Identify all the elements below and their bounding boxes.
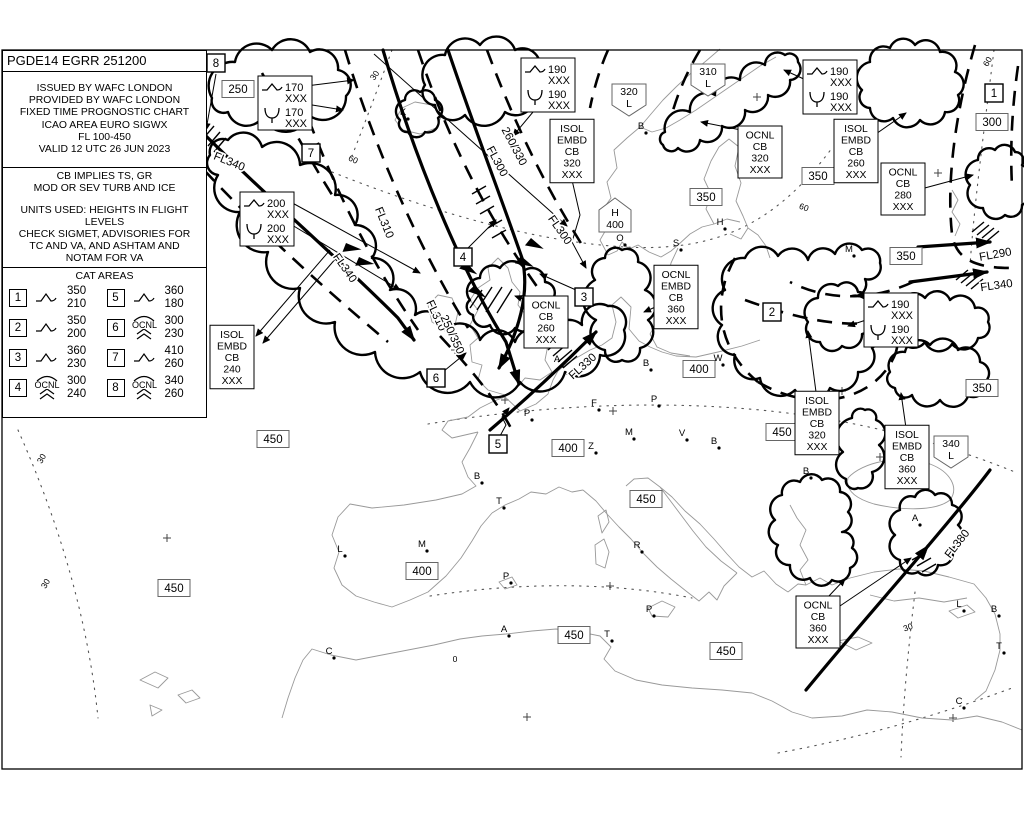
city-marker: B bbox=[643, 358, 653, 372]
cat-area-number-box: 7 bbox=[302, 144, 320, 162]
tropopause-height-box: 350 bbox=[890, 248, 922, 265]
text-line: ISSUED BY WAFC LONDON bbox=[37, 83, 173, 95]
cat-top-level: 360 bbox=[67, 345, 86, 358]
cat-boundaries bbox=[204, 45, 1018, 430]
cat-legend-entry: 2350200 bbox=[9, 315, 105, 340]
cat-entry-number: 1 bbox=[9, 289, 27, 307]
tropopause-height-box: 450 bbox=[766, 424, 798, 441]
tropopause-height-box: 350 bbox=[966, 380, 998, 397]
cat-legend-entry: 3360230 bbox=[9, 345, 105, 370]
city-dot bbox=[406, 117, 409, 120]
cb-box-line: CB bbox=[753, 142, 768, 153]
jet-label: FL340 bbox=[212, 151, 247, 174]
cb-area-scalloped bbox=[890, 490, 963, 575]
cb-info-box: ISOLEMBDCB240XXX bbox=[210, 325, 254, 389]
trop-box-value: 350 bbox=[896, 251, 915, 263]
city-dot bbox=[721, 363, 724, 366]
cb-box-line: 260 bbox=[537, 324, 555, 335]
leader-arrow bbox=[306, 80, 354, 86]
coastline bbox=[598, 510, 609, 533]
coastline bbox=[282, 629, 1022, 730]
wind-feather bbox=[480, 206, 494, 214]
text-line: ICAO AREA EURO SIGWX bbox=[42, 120, 168, 132]
trop-pent-top: 340 bbox=[942, 438, 960, 450]
severe-turbulence-icon: OCNL bbox=[128, 315, 162, 340]
cat-boundary-dashed bbox=[721, 258, 758, 382]
trop-pent-bottom: L bbox=[626, 98, 632, 110]
text-line: UNITS USED: HEIGHTS IN FLIGHT LEVELS bbox=[3, 205, 206, 229]
city-marker: H bbox=[717, 217, 727, 231]
cat-legend-entry: 6OCNL300230 bbox=[107, 315, 203, 340]
tropopause-height-box: 300 bbox=[976, 114, 1008, 131]
cb-info-box: OCNLEMBDCB360XXX bbox=[654, 265, 698, 329]
cb-note: CB IMPLIES TS, GRMOD OR SEV TURB AND ICE bbox=[34, 171, 176, 195]
turb-ice-box: 190XXX190XXX bbox=[521, 58, 575, 112]
cb-info-box: OCNLCB320XXX bbox=[738, 126, 782, 178]
tropopause-height-box: 250 bbox=[222, 81, 254, 98]
ocnl-severe-turb-stack: OCNL bbox=[34, 375, 59, 400]
trop-box-value: 300 bbox=[982, 117, 1001, 129]
cat-entry-number: 8 bbox=[107, 379, 125, 397]
cat-number: 2 bbox=[769, 307, 775, 319]
city-letter: V bbox=[679, 428, 686, 439]
cb-box-line: CB bbox=[900, 453, 915, 464]
city-dot bbox=[962, 706, 965, 709]
city-dot bbox=[962, 609, 965, 612]
city-dot bbox=[1002, 651, 1005, 654]
city-dot bbox=[507, 634, 510, 637]
cb-box-line: OCNL bbox=[746, 131, 775, 142]
cat-entry-number: 5 bbox=[107, 289, 125, 307]
cat-top-level: 340 bbox=[165, 375, 184, 388]
cb-info-box: ISOLEMBDCB320XXX bbox=[550, 119, 594, 183]
cat-legend-entry: 7410260 bbox=[107, 345, 203, 370]
city-letter: T bbox=[496, 496, 502, 507]
city-dot bbox=[594, 451, 597, 454]
cat-area-number-box: 6 bbox=[427, 369, 445, 387]
cb-box-line: OCNL bbox=[889, 168, 918, 179]
turb-ice-box: 190XXX190XXX bbox=[803, 60, 857, 114]
tropopause-height-box: 400 bbox=[552, 440, 584, 457]
cb-box-line: 240 bbox=[223, 364, 241, 375]
trop-box-value: 450 bbox=[716, 646, 735, 658]
cat-base-level: 260 bbox=[165, 388, 184, 401]
wind-feather bbox=[917, 558, 931, 566]
trop-box-value: 400 bbox=[689, 364, 708, 376]
notes-block: CB IMPLIES TS, GRMOD OR SEV TURB AND ICE… bbox=[3, 168, 206, 268]
city-letter: B bbox=[638, 121, 644, 132]
jet-label: FL300 bbox=[545, 213, 574, 247]
city-dot bbox=[657, 404, 660, 407]
city-dot bbox=[632, 437, 635, 440]
text-line: VALID 12 UTC 26 JUN 2023 bbox=[39, 144, 170, 156]
cat-entry-values: 360230 bbox=[67, 345, 86, 370]
city-marker: M bbox=[418, 539, 429, 553]
cb-box-line: XXX bbox=[807, 442, 828, 453]
cb-box-line: EMBD bbox=[802, 407, 832, 418]
text-line: FL 100-450 bbox=[78, 132, 131, 144]
tropopause-height-box: 350 bbox=[802, 168, 834, 185]
trop-pent-top: 320 bbox=[620, 86, 638, 98]
trop-pent-top: 310 bbox=[699, 66, 717, 78]
cat-area-number-box: 8 bbox=[207, 54, 225, 72]
tropopause-height-box: 450 bbox=[257, 431, 289, 448]
trop-box-value: 450 bbox=[164, 583, 183, 595]
leader-arrow bbox=[206, 74, 216, 130]
graticule-line bbox=[430, 586, 692, 598]
cat-entry-values: 360180 bbox=[165, 285, 184, 310]
cat-base-level: 230 bbox=[67, 358, 86, 371]
cat-number: 1 bbox=[991, 88, 997, 100]
city-letter: M bbox=[418, 539, 426, 550]
city-dot bbox=[679, 248, 682, 251]
cat-boundary-dashed bbox=[300, 96, 418, 330]
cat-area-number-box: 2 bbox=[763, 303, 781, 321]
trop-box-value: 450 bbox=[564, 630, 583, 642]
trop-box-value: 250 bbox=[228, 84, 247, 96]
cb-box-line: XXX bbox=[222, 376, 243, 387]
jet-stream-arrow bbox=[910, 272, 987, 282]
cb-box-line: XXX bbox=[562, 170, 583, 181]
cat-entry-number: 6 bbox=[107, 319, 125, 337]
city-dot bbox=[597, 408, 600, 411]
city-dot bbox=[640, 550, 643, 553]
ice-base: XXX bbox=[891, 335, 914, 347]
cat-number: 3 bbox=[581, 292, 587, 304]
jet-stream-arrow bbox=[448, 50, 525, 368]
city-dot bbox=[809, 476, 812, 479]
coastline bbox=[150, 705, 162, 716]
city-marker: P bbox=[646, 604, 656, 618]
cb-box-line: 320 bbox=[808, 430, 826, 441]
turb-base: XXX bbox=[891, 310, 914, 322]
cb-box-line: OCNL bbox=[662, 270, 691, 281]
cb-info-box: ISOLEMBDCB320XXX bbox=[795, 391, 839, 455]
cb-box-line: ISOL bbox=[220, 330, 244, 341]
text-line: FIXED TIME PROGNOSTIC CHART bbox=[20, 107, 189, 119]
city-letter: S bbox=[673, 238, 679, 249]
trop-box-value: 350 bbox=[808, 171, 827, 183]
cat-top-level: 360 bbox=[165, 285, 184, 298]
coastline bbox=[650, 334, 690, 356]
city-marker: A bbox=[554, 354, 564, 368]
cb-info-box: OCNLCB360XXX bbox=[796, 596, 840, 648]
graticule-cross bbox=[876, 453, 884, 461]
city-letter: B bbox=[643, 358, 649, 369]
coastline bbox=[660, 487, 788, 592]
city-letter: F bbox=[591, 398, 597, 409]
city-marker: O bbox=[616, 233, 626, 247]
coastline bbox=[178, 690, 200, 703]
graticule-cross bbox=[934, 169, 942, 177]
coastline bbox=[492, 487, 583, 513]
city-dot bbox=[332, 656, 335, 659]
cb-area-scalloped bbox=[857, 39, 964, 128]
ice-base: XXX bbox=[548, 100, 571, 112]
city-letter: B bbox=[474, 471, 480, 482]
city-dot bbox=[852, 254, 855, 257]
cat-top-level: 300 bbox=[67, 375, 86, 388]
ocnl-label: OCNL bbox=[34, 382, 59, 389]
moderate-turbulence-icon bbox=[128, 352, 162, 364]
tropopause-extreme-box: 310L bbox=[691, 64, 725, 96]
sigwx-chart: FL340FL340FL310FL310250/350FL300260/330F… bbox=[0, 0, 1024, 821]
cat-boundary-dashed bbox=[1011, 66, 1018, 186]
leader-arrow bbox=[467, 220, 496, 249]
cat-entry-values: 350200 bbox=[67, 315, 86, 340]
graticule-cross bbox=[523, 713, 531, 721]
cat-base-level: 240 bbox=[67, 388, 86, 401]
graticule-line bbox=[778, 688, 1012, 753]
turb-base: XXX bbox=[267, 209, 290, 221]
cb-box-line: OCNL bbox=[532, 301, 561, 312]
city-marker: M bbox=[625, 427, 636, 441]
cat-base-level: 200 bbox=[67, 328, 86, 341]
city-letter: R bbox=[634, 540, 641, 551]
tropopause-height-box: 400 bbox=[683, 361, 715, 378]
city-dot bbox=[343, 554, 346, 557]
city-dot bbox=[997, 614, 1000, 617]
city-letter: B bbox=[991, 604, 997, 615]
city-letter: L bbox=[337, 544, 342, 555]
ocnl-label: OCNL bbox=[132, 322, 157, 329]
tropopause-height-box: 400 bbox=[406, 563, 438, 580]
city-letter: K bbox=[400, 107, 407, 118]
trop-box-value: 450 bbox=[263, 434, 282, 446]
cat-top-level: 410 bbox=[165, 345, 184, 358]
trop-box-value: 400 bbox=[558, 443, 577, 455]
cb-box-line: XXX bbox=[536, 335, 557, 346]
turb-ice-box: 200XXX200XXX bbox=[240, 192, 294, 246]
cb-box-line: ISOL bbox=[895, 430, 919, 441]
trop-pent-bottom: L bbox=[705, 78, 711, 90]
city-dot bbox=[644, 131, 647, 134]
cat-base-level: 180 bbox=[165, 298, 184, 311]
text-line: MOD OR SEV TURB AND ICE bbox=[34, 183, 176, 195]
cb-box-line: 320 bbox=[563, 158, 581, 169]
cat-legend-entry: 4OCNL300240 bbox=[9, 375, 105, 400]
info-panel: PGDE14 EGRR 251200 ISSUED BY WAFC LONDON… bbox=[2, 50, 207, 418]
cb-box-line: OCNL bbox=[804, 601, 833, 612]
city-marker: B bbox=[711, 436, 721, 450]
cat-boundary-dashed bbox=[590, 50, 608, 108]
moderate-turbulence-icon bbox=[30, 322, 64, 334]
city-letter: B bbox=[711, 436, 717, 447]
graticule-cross bbox=[163, 534, 171, 542]
cat-boundary-dashed bbox=[440, 336, 512, 430]
cat-area-number-box: 3 bbox=[575, 288, 593, 306]
city-dot bbox=[717, 446, 720, 449]
city-dot bbox=[649, 368, 652, 371]
cat-base-level: 210 bbox=[67, 298, 86, 311]
coastline bbox=[952, 190, 960, 236]
jet-label: FL340 bbox=[980, 278, 1014, 294]
tropopause-extreme-box: 320L bbox=[612, 84, 646, 116]
cat-base-level: 260 bbox=[165, 358, 184, 371]
cb-box-line: XXX bbox=[666, 316, 687, 327]
cat-area-number-box: 1 bbox=[985, 84, 1003, 102]
city-dot bbox=[560, 364, 563, 367]
city-letter: H bbox=[717, 217, 724, 228]
city-dot bbox=[685, 438, 688, 441]
cat-entry-values: 350210 bbox=[67, 285, 86, 310]
cb-box-line: EMBD bbox=[557, 135, 587, 146]
graticule-line bbox=[901, 592, 915, 757]
graticule-cross bbox=[606, 582, 614, 590]
city-marker: A bbox=[912, 513, 922, 527]
jet-label: FL310 bbox=[372, 206, 395, 241]
cb-box-line: CB bbox=[810, 419, 825, 430]
city-dot bbox=[509, 581, 512, 584]
city-dot bbox=[480, 481, 483, 484]
city-dot bbox=[610, 639, 613, 642]
cb-box-line: XXX bbox=[893, 202, 914, 213]
graticule-line bbox=[18, 430, 98, 718]
cat-entry-values: 300240 bbox=[67, 375, 86, 400]
cb-info-box: ISOLEMBDCB260XXX bbox=[834, 119, 878, 183]
city-marker: R bbox=[634, 540, 644, 554]
cb-area-scalloped bbox=[966, 145, 1024, 219]
cat-legend: CAT AREAS 1350210536018023502006OCNL3002… bbox=[3, 268, 206, 419]
tropopause-height-box: 350 bbox=[690, 189, 722, 206]
city-letter: L bbox=[956, 599, 961, 610]
cb-box-line: XXX bbox=[846, 170, 867, 181]
city-marker: L bbox=[337, 544, 346, 558]
ice-base: XXX bbox=[830, 102, 853, 114]
moderate-turbulence-icon bbox=[128, 292, 162, 304]
cat-top-level: 350 bbox=[67, 285, 86, 298]
trop-pent-bottom: L bbox=[948, 450, 954, 462]
city-marker: T bbox=[996, 641, 1006, 655]
city-dot bbox=[502, 506, 505, 509]
cat-area-number-box: 4 bbox=[454, 248, 472, 266]
cb-box-line: XXX bbox=[750, 165, 771, 176]
coastline bbox=[949, 605, 975, 618]
city-marker: M bbox=[845, 244, 856, 258]
leader-arrow bbox=[921, 175, 973, 189]
cat-number: 6 bbox=[433, 373, 439, 385]
cat-entry-values: 300230 bbox=[165, 315, 184, 340]
city-letter: B bbox=[803, 466, 809, 477]
city-letter: O bbox=[616, 233, 623, 244]
city-letter: M bbox=[625, 427, 633, 438]
city-letter: A bbox=[501, 624, 508, 635]
cb-box-line: EMBD bbox=[892, 441, 922, 452]
jet-label: FL290 bbox=[978, 246, 1012, 263]
cb-box-line: CB bbox=[669, 293, 684, 304]
city-letter: W bbox=[714, 353, 723, 364]
cb-info-box: ISOLEMBDCB360XXX bbox=[885, 425, 929, 489]
graticule-cross bbox=[949, 714, 957, 722]
graticule-label: 30 bbox=[39, 577, 53, 590]
cb-box-line: EMBD bbox=[217, 341, 247, 352]
cat-base-level: 230 bbox=[165, 328, 184, 341]
ocnl-severe-turb-stack: OCNL bbox=[132, 315, 157, 340]
city-letter: M bbox=[845, 244, 853, 255]
turb-base: XXX bbox=[830, 77, 853, 89]
graticule-cross bbox=[609, 407, 617, 415]
ice-base: XXX bbox=[285, 118, 308, 130]
cat-legend-entry: 5360180 bbox=[107, 285, 203, 310]
cb-box-line: ISOL bbox=[805, 396, 829, 407]
trop-box-value: 350 bbox=[972, 383, 991, 395]
trop-pent-top: H bbox=[611, 207, 619, 219]
tropopause-extreme-box: H400 bbox=[599, 198, 631, 232]
cb-info-box: OCNLCB260XXX bbox=[524, 296, 568, 348]
cb-box-line: ISOL bbox=[560, 124, 584, 135]
cat-boundary-dashed bbox=[950, 45, 1012, 268]
city-letter: C bbox=[956, 696, 963, 707]
turb-ice-box: 190XXX190XXX bbox=[864, 293, 918, 347]
city-marker: V bbox=[679, 428, 689, 442]
cb-box-line: 360 bbox=[898, 464, 916, 475]
graticule-line bbox=[352, 50, 392, 156]
cat-entry-number: 3 bbox=[9, 349, 27, 367]
city-letter: P bbox=[646, 604, 652, 615]
city-marker: C bbox=[956, 696, 966, 710]
severe-turbulence-icon: OCNL bbox=[128, 375, 162, 400]
text-line: TC AND VA, AND ASHTAM AND bbox=[3, 241, 206, 253]
cat-top-level: 300 bbox=[165, 315, 184, 328]
turb-ice-box: 170XXX170XXX bbox=[258, 76, 312, 130]
cb-box-line: ISOL bbox=[844, 124, 868, 135]
graticule-label: 60 bbox=[347, 153, 360, 166]
wind-feather bbox=[497, 289, 512, 313]
cat-entry-number: 7 bbox=[107, 349, 125, 367]
city-marker: Z bbox=[588, 441, 598, 455]
city-letter: P bbox=[524, 408, 530, 419]
cat-entry-values: 340260 bbox=[165, 375, 184, 400]
city-letter: A bbox=[912, 513, 919, 524]
cb-box-line: 360 bbox=[809, 624, 827, 635]
cb-box-line: 320 bbox=[751, 154, 769, 165]
cb-box-line: XXX bbox=[897, 476, 918, 487]
city-marker: P bbox=[524, 408, 534, 422]
city-marker: B bbox=[474, 471, 484, 485]
cb-info-box: OCNLCB280XXX bbox=[881, 163, 925, 215]
text-line: CHECK SIGMET, ADVISORIES FOR bbox=[3, 229, 206, 241]
trop-box-value: 400 bbox=[412, 566, 431, 578]
issuer-block: ISSUED BY WAFC LONDONPROVIDED BY WAFC LO… bbox=[3, 72, 206, 168]
cb-box-line: 280 bbox=[894, 191, 912, 202]
cb-area-scalloped bbox=[769, 474, 857, 586]
cat-entry-number: 4 bbox=[9, 379, 27, 397]
cat-boundary-dashed bbox=[204, 170, 388, 342]
city-letter: C bbox=[326, 646, 333, 657]
graticule-label: 60 bbox=[798, 201, 811, 214]
tropopause-height-box: 450 bbox=[158, 580, 190, 597]
cb-area-scalloped bbox=[713, 244, 881, 400]
city-letter: Z bbox=[588, 441, 594, 452]
cat-entry-number: 2 bbox=[9, 319, 27, 337]
wind-feather bbox=[476, 196, 490, 204]
jet-pennant bbox=[523, 235, 543, 256]
city-letter: P bbox=[651, 394, 657, 405]
turb-base: XXX bbox=[548, 75, 571, 87]
cat-number: 7 bbox=[308, 148, 314, 160]
ocnl-severe-turb-stack: OCNL bbox=[132, 375, 157, 400]
turb-base: XXX bbox=[285, 93, 308, 105]
trop-box-value: 350 bbox=[696, 192, 715, 204]
cb-box-line: 260 bbox=[847, 158, 865, 169]
cat-number: 4 bbox=[460, 252, 467, 264]
city-letter: P bbox=[503, 571, 509, 582]
chart-id: PGDE14 EGRR 251200 bbox=[3, 51, 206, 72]
cb-box-line: CB bbox=[225, 353, 240, 364]
cat-legend-title: CAT AREAS bbox=[76, 270, 134, 282]
wind-feather bbox=[922, 564, 936, 572]
tropopause-extreme-box: 340L bbox=[934, 436, 968, 468]
